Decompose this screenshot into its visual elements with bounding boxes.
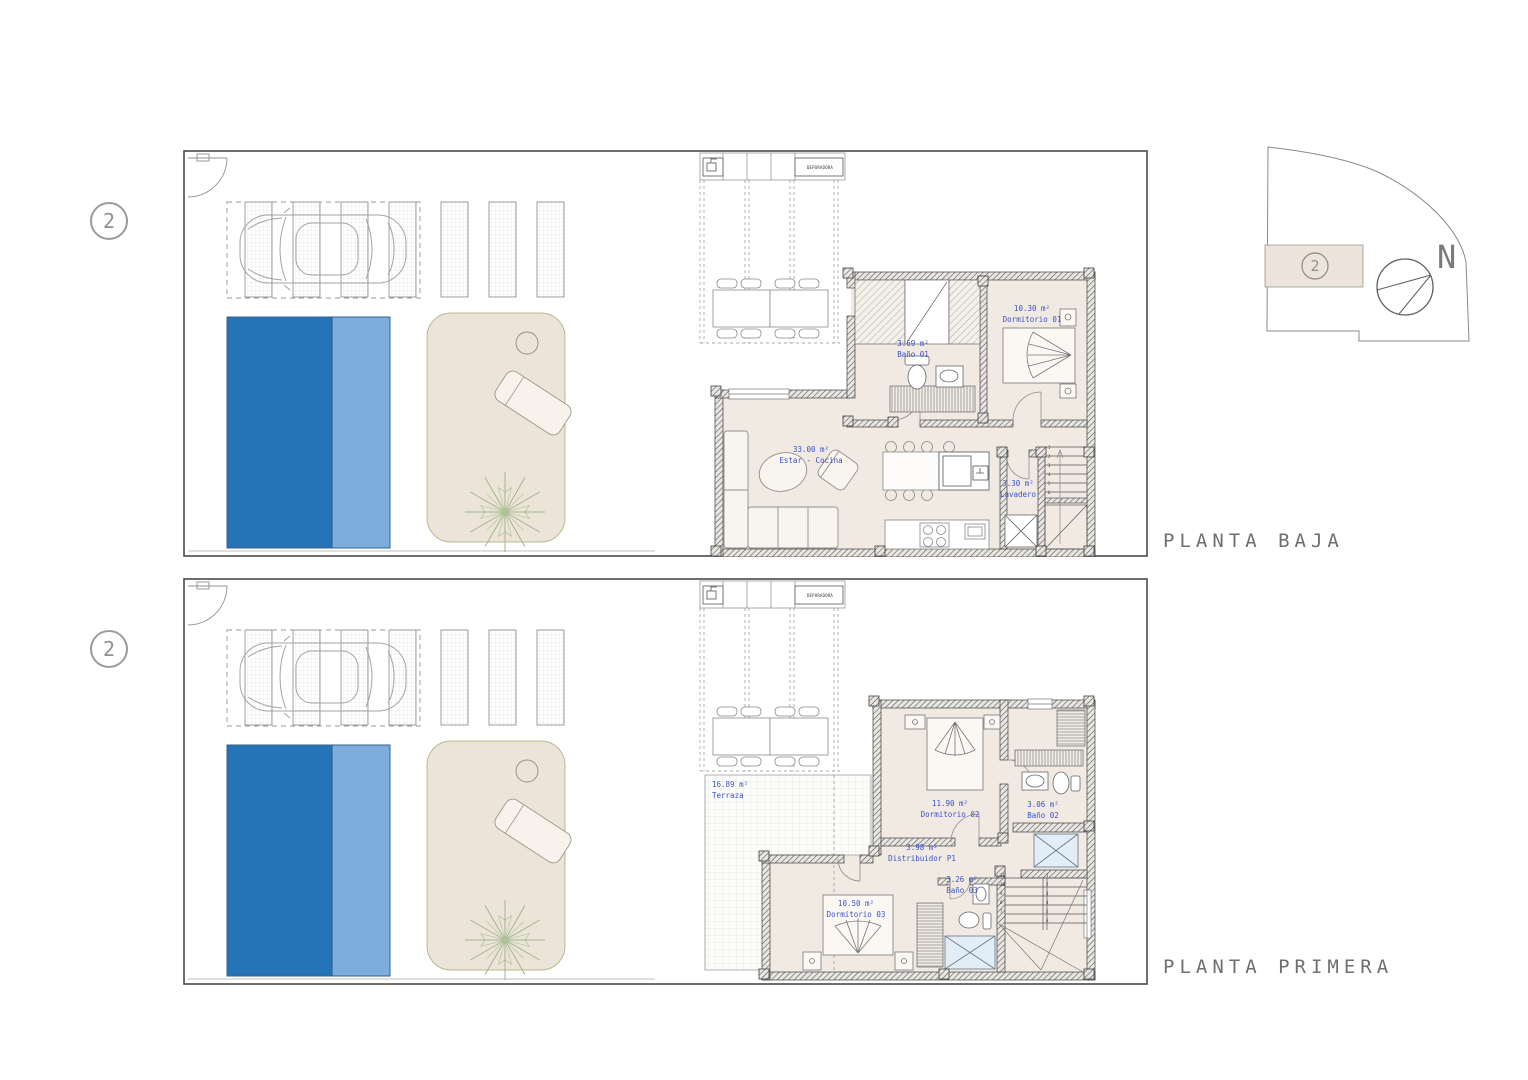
toilet-bowl	[908, 365, 926, 389]
shower-bano03	[945, 936, 995, 969]
room-label-distribuidor-p1: 3.98 m² Distribuidor P1	[888, 842, 956, 864]
room-label-dormitorio01: 10.30 m² Dormitorio 01	[1003, 303, 1062, 325]
key-unit-number: 2	[1310, 257, 1319, 275]
depuradora-label-pp: DEPURADORA	[797, 586, 843, 604]
room-label-estar-cocina: 33.00 m² Estar - Cocina	[779, 444, 842, 466]
unit-number-text: 2	[103, 637, 115, 661]
sink-bowl	[940, 370, 958, 382]
stair-steps-pp-flight1: 1 2 3 4 5 6	[1046, 871, 1048, 925]
key-plan: 2 N	[1250, 135, 1500, 350]
stair-steps-pp-flight2: 11 10 9 8 7	[1000, 871, 1005, 916]
unit-number-badge-pp: 2	[90, 630, 128, 668]
room-label-dormitorio02: 11.90 m² Dormitorio 02	[921, 798, 980, 820]
lavadero-washer	[1005, 515, 1037, 547]
shower-bano02	[1034, 834, 1078, 867]
room-label-dormitorio03: 10.50 m² Dormitorio 03	[827, 898, 886, 920]
floor-plan-sheet: 2 2 DEPURADORA DEPURADORA 33.00 m² Estar…	[0, 0, 1528, 1080]
kitchen-island	[883, 452, 939, 490]
room-label-lavadero: 3.30 m² Lavadero	[1000, 478, 1036, 500]
radiator	[890, 386, 975, 412]
window-top	[1028, 699, 1052, 709]
unit-number-badge-pb: 2	[90, 202, 128, 240]
plan-title-planta-primera: PLANTA PRIMERA	[1163, 956, 1393, 978]
toilet-tank	[1071, 776, 1080, 791]
north-label: N	[1437, 238, 1456, 276]
depuradora-label-pb: DEPURADORA	[797, 158, 843, 176]
sink-bowl	[1026, 775, 1044, 787]
unit-number-text: 2	[103, 209, 115, 233]
toilet-bowl	[959, 912, 979, 928]
wardrobe-dorm03	[917, 903, 943, 967]
room-label-bano02: 3.06 m² Baño 02	[1027, 799, 1059, 821]
room-label-bano03: 3.26 m² Baño 03	[946, 874, 978, 896]
toilet-tank	[983, 913, 991, 929]
planta-primera-drawing	[183, 578, 1148, 985]
room-label-bano01: 3.69 m² Baño 01	[897, 338, 929, 360]
toilet-bowl	[1053, 772, 1069, 794]
room-label-terraza: 16.89 m² Terraza	[712, 779, 748, 801]
plan-title-planta-baja: PLANTA BAJA	[1163, 530, 1344, 552]
window-living	[729, 389, 789, 399]
stair-steps-pb: 1 2 3 4 5 6	[1048, 443, 1050, 497]
